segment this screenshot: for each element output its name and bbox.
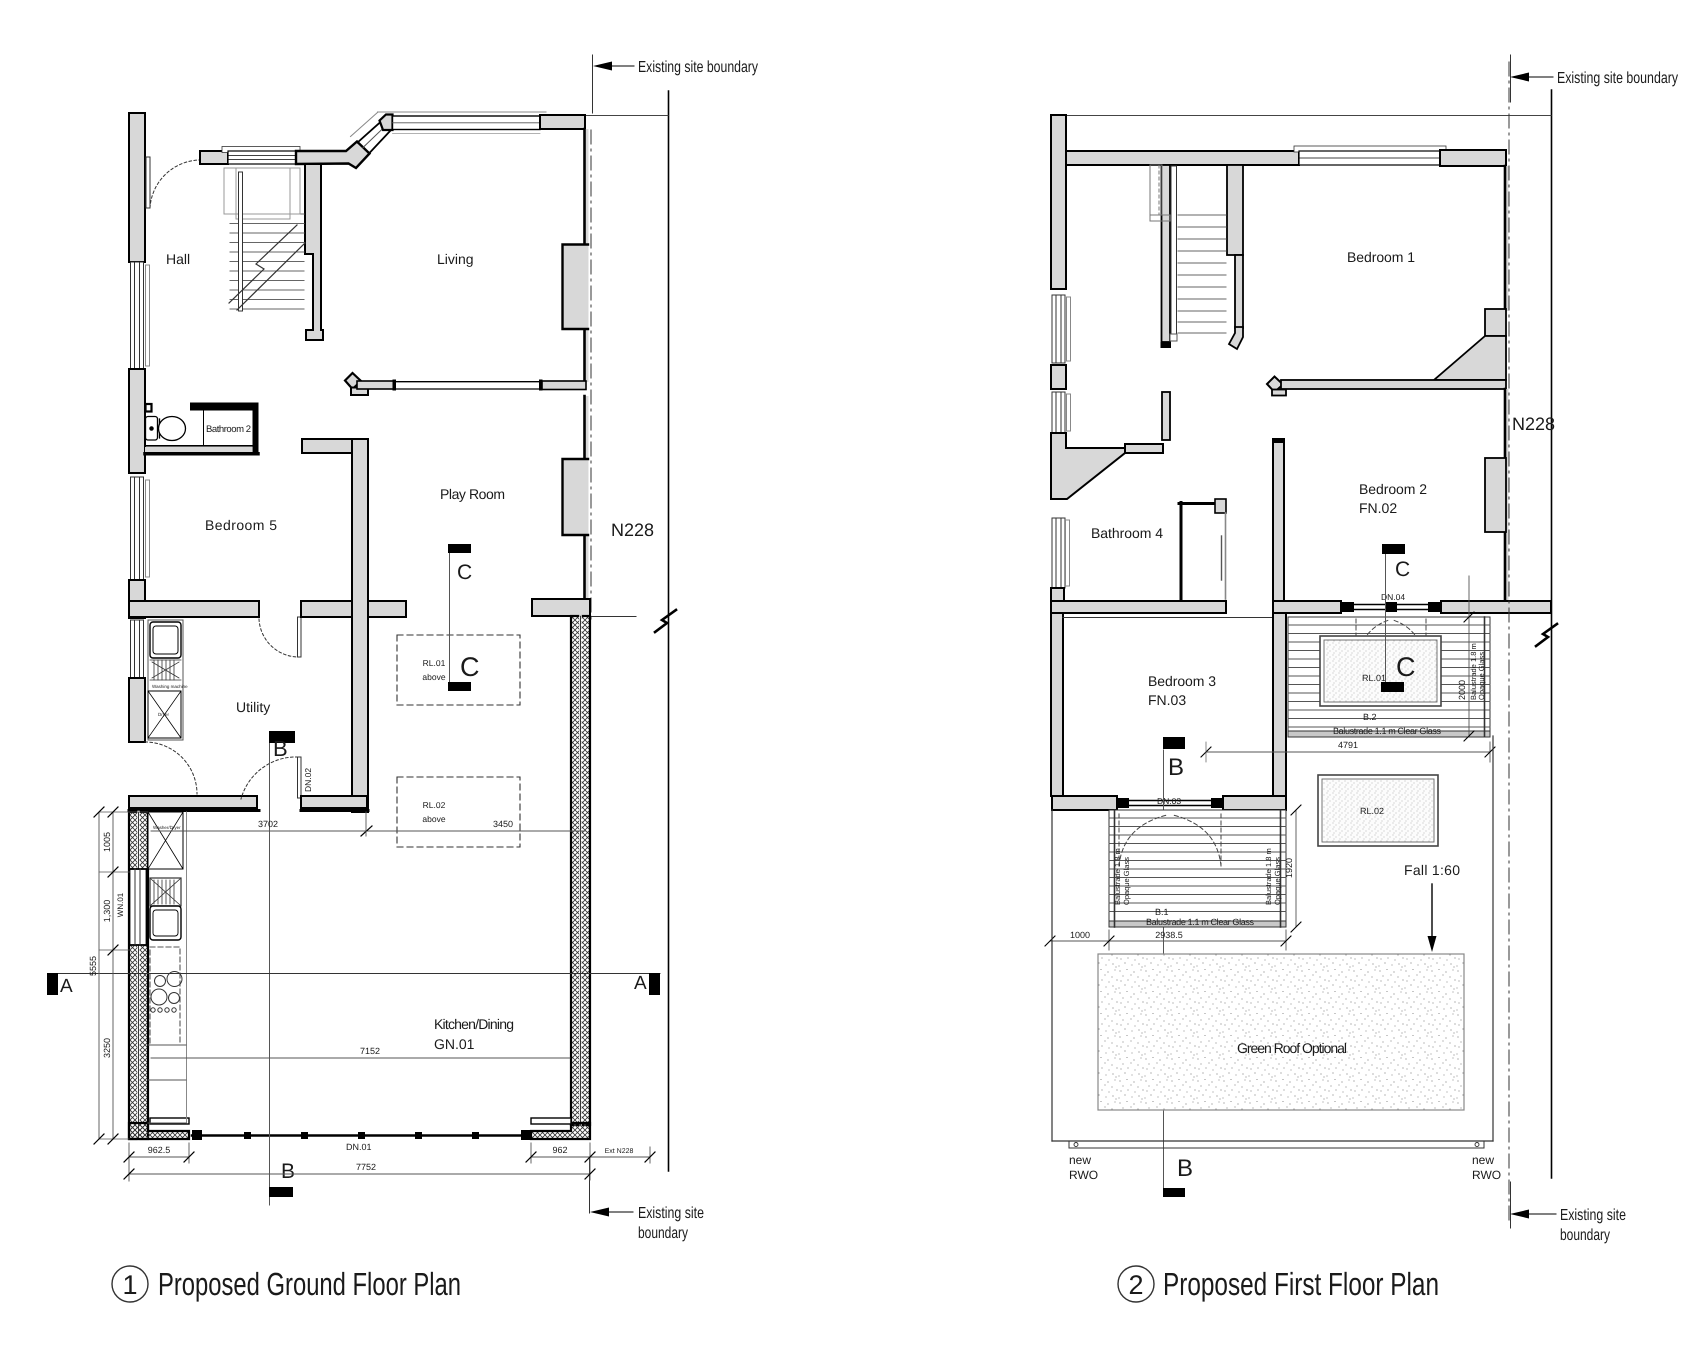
svg-text:Living: Living [437, 251, 474, 267]
svg-text:above: above [422, 814, 445, 824]
svg-text:Bathroom 4: Bathroom 4 [1091, 525, 1163, 541]
svg-text:Balustrade 1.1 m Clear Glass: Balustrade 1.1 m Clear Glass [1146, 917, 1255, 927]
svg-text:B.1: B.1 [1155, 907, 1169, 917]
svg-text:DN.04: DN.04 [1381, 592, 1405, 602]
svg-text:Kitchen/Dining: Kitchen/Dining [434, 1016, 514, 1032]
svg-text:Balustrade 1.1 m Clear Glass: Balustrade 1.1 m Clear Glass [1333, 726, 1442, 736]
svg-text:FN.02: FN.02 [1359, 500, 1397, 516]
svg-text:RL.02: RL.02 [1360, 806, 1384, 816]
svg-text:B: B [1177, 1155, 1193, 1182]
svg-text:Fall 1:60: Fall 1:60 [1404, 862, 1460, 878]
svg-text:A: A [60, 976, 73, 997]
svg-text:5555: 5555 [88, 956, 98, 976]
svg-text:Existing site: Existing site [1560, 1207, 1626, 1224]
svg-text:1920: 1920 [1284, 858, 1294, 878]
svg-text:Proposed First Floor Plan: Proposed First Floor Plan [1163, 1266, 1439, 1302]
svg-text:Proposed Ground Floor Plan: Proposed Ground Floor Plan [158, 1266, 461, 1302]
svg-text:DN.02: DN.02 [303, 768, 313, 792]
svg-text:Existing site: Existing site [638, 1205, 704, 1222]
svg-text:C: C [460, 652, 480, 682]
svg-text:N228: N228 [1512, 414, 1555, 434]
svg-text:Washing machine: Washing machine [152, 684, 188, 689]
svg-text:Existing site boundary: Existing site boundary [1557, 70, 1678, 87]
svg-text:B: B [281, 1160, 295, 1183]
svg-text:962: 962 [552, 1145, 567, 1155]
svg-text:7752: 7752 [356, 1162, 376, 1172]
svg-text:Balustrade 1.8 m: Balustrade 1.8 m [1264, 848, 1273, 905]
svg-text:new: new [1069, 1153, 1091, 1167]
svg-text:Bathroom 2: Bathroom 2 [206, 424, 251, 435]
svg-text:RL.01: RL.01 [1362, 673, 1386, 683]
svg-text:Bedroom 3: Bedroom 3 [1148, 673, 1216, 689]
svg-text:C: C [1396, 652, 1416, 682]
svg-text:3702: 3702 [258, 819, 278, 829]
svg-text:1000: 1000 [1070, 930, 1090, 940]
svg-text:3250: 3250 [102, 1038, 112, 1058]
svg-text:above: above [422, 672, 445, 682]
svg-text:Opaque Glass: Opaque Glass [1122, 857, 1131, 905]
svg-text:GN.01: GN.01 [434, 1036, 475, 1052]
svg-text:1,300: 1,300 [102, 900, 112, 923]
svg-text:B: B [1168, 754, 1184, 781]
svg-text:DN.01: DN.01 [346, 1142, 372, 1152]
svg-text:Utility: Utility [236, 699, 270, 715]
svg-text:1005: 1005 [102, 832, 112, 852]
svg-text:Washer/Dryer: Washer/Dryer [153, 825, 181, 830]
svg-text:boundary: boundary [638, 1225, 688, 1242]
svg-text:1: 1 [122, 1270, 137, 1300]
svg-text:N228: N228 [611, 520, 654, 540]
svg-text:4791: 4791 [1338, 740, 1358, 750]
svg-text:B: B [273, 736, 288, 761]
svg-text:7152: 7152 [360, 1046, 380, 1056]
svg-text:Opaque Glass: Opaque Glass [1273, 857, 1282, 905]
svg-text:Play Room: Play Room [440, 486, 505, 502]
svg-text:A: A [634, 973, 647, 994]
svg-text:C: C [457, 561, 472, 584]
svg-text:Existing site boundary: Existing site boundary [638, 59, 758, 76]
svg-text:Hall: Hall [166, 251, 190, 267]
svg-text:C: C [1395, 558, 1410, 581]
svg-text:RL.01: RL.01 [423, 658, 446, 668]
svg-text:Dryer: Dryer [158, 712, 170, 717]
svg-text:DN.03: DN.03 [1157, 796, 1181, 806]
svg-text:RL.02: RL.02 [423, 800, 446, 810]
svg-text:B.2: B.2 [1363, 712, 1377, 722]
svg-text:2938.5: 2938.5 [1155, 930, 1183, 940]
svg-text:new: new [1472, 1153, 1494, 1167]
svg-text:Opaque Glass: Opaque Glass [1477, 652, 1486, 700]
svg-text:2: 2 [1128, 1270, 1143, 1300]
svg-text:RWO: RWO [1472, 1168, 1501, 1182]
svg-text:FN.03: FN.03 [1148, 692, 1186, 708]
svg-text:2000: 2000 [1457, 680, 1467, 700]
svg-text:3450: 3450 [493, 819, 513, 829]
svg-text:Bedroom 1: Bedroom 1 [1347, 249, 1415, 265]
svg-text:WN.01: WN.01 [116, 892, 125, 917]
svg-text:RWO: RWO [1069, 1168, 1098, 1182]
svg-text:962.5: 962.5 [148, 1145, 171, 1155]
svg-text:boundary: boundary [1560, 1227, 1610, 1244]
svg-text:Ext N228: Ext N228 [605, 1148, 634, 1155]
svg-text:Green Roof Optional: Green Roof Optional [1237, 1040, 1347, 1056]
svg-text:Bedroom 5: Bedroom 5 [205, 517, 277, 533]
svg-text:Bedroom 2: Bedroom 2 [1359, 481, 1427, 497]
